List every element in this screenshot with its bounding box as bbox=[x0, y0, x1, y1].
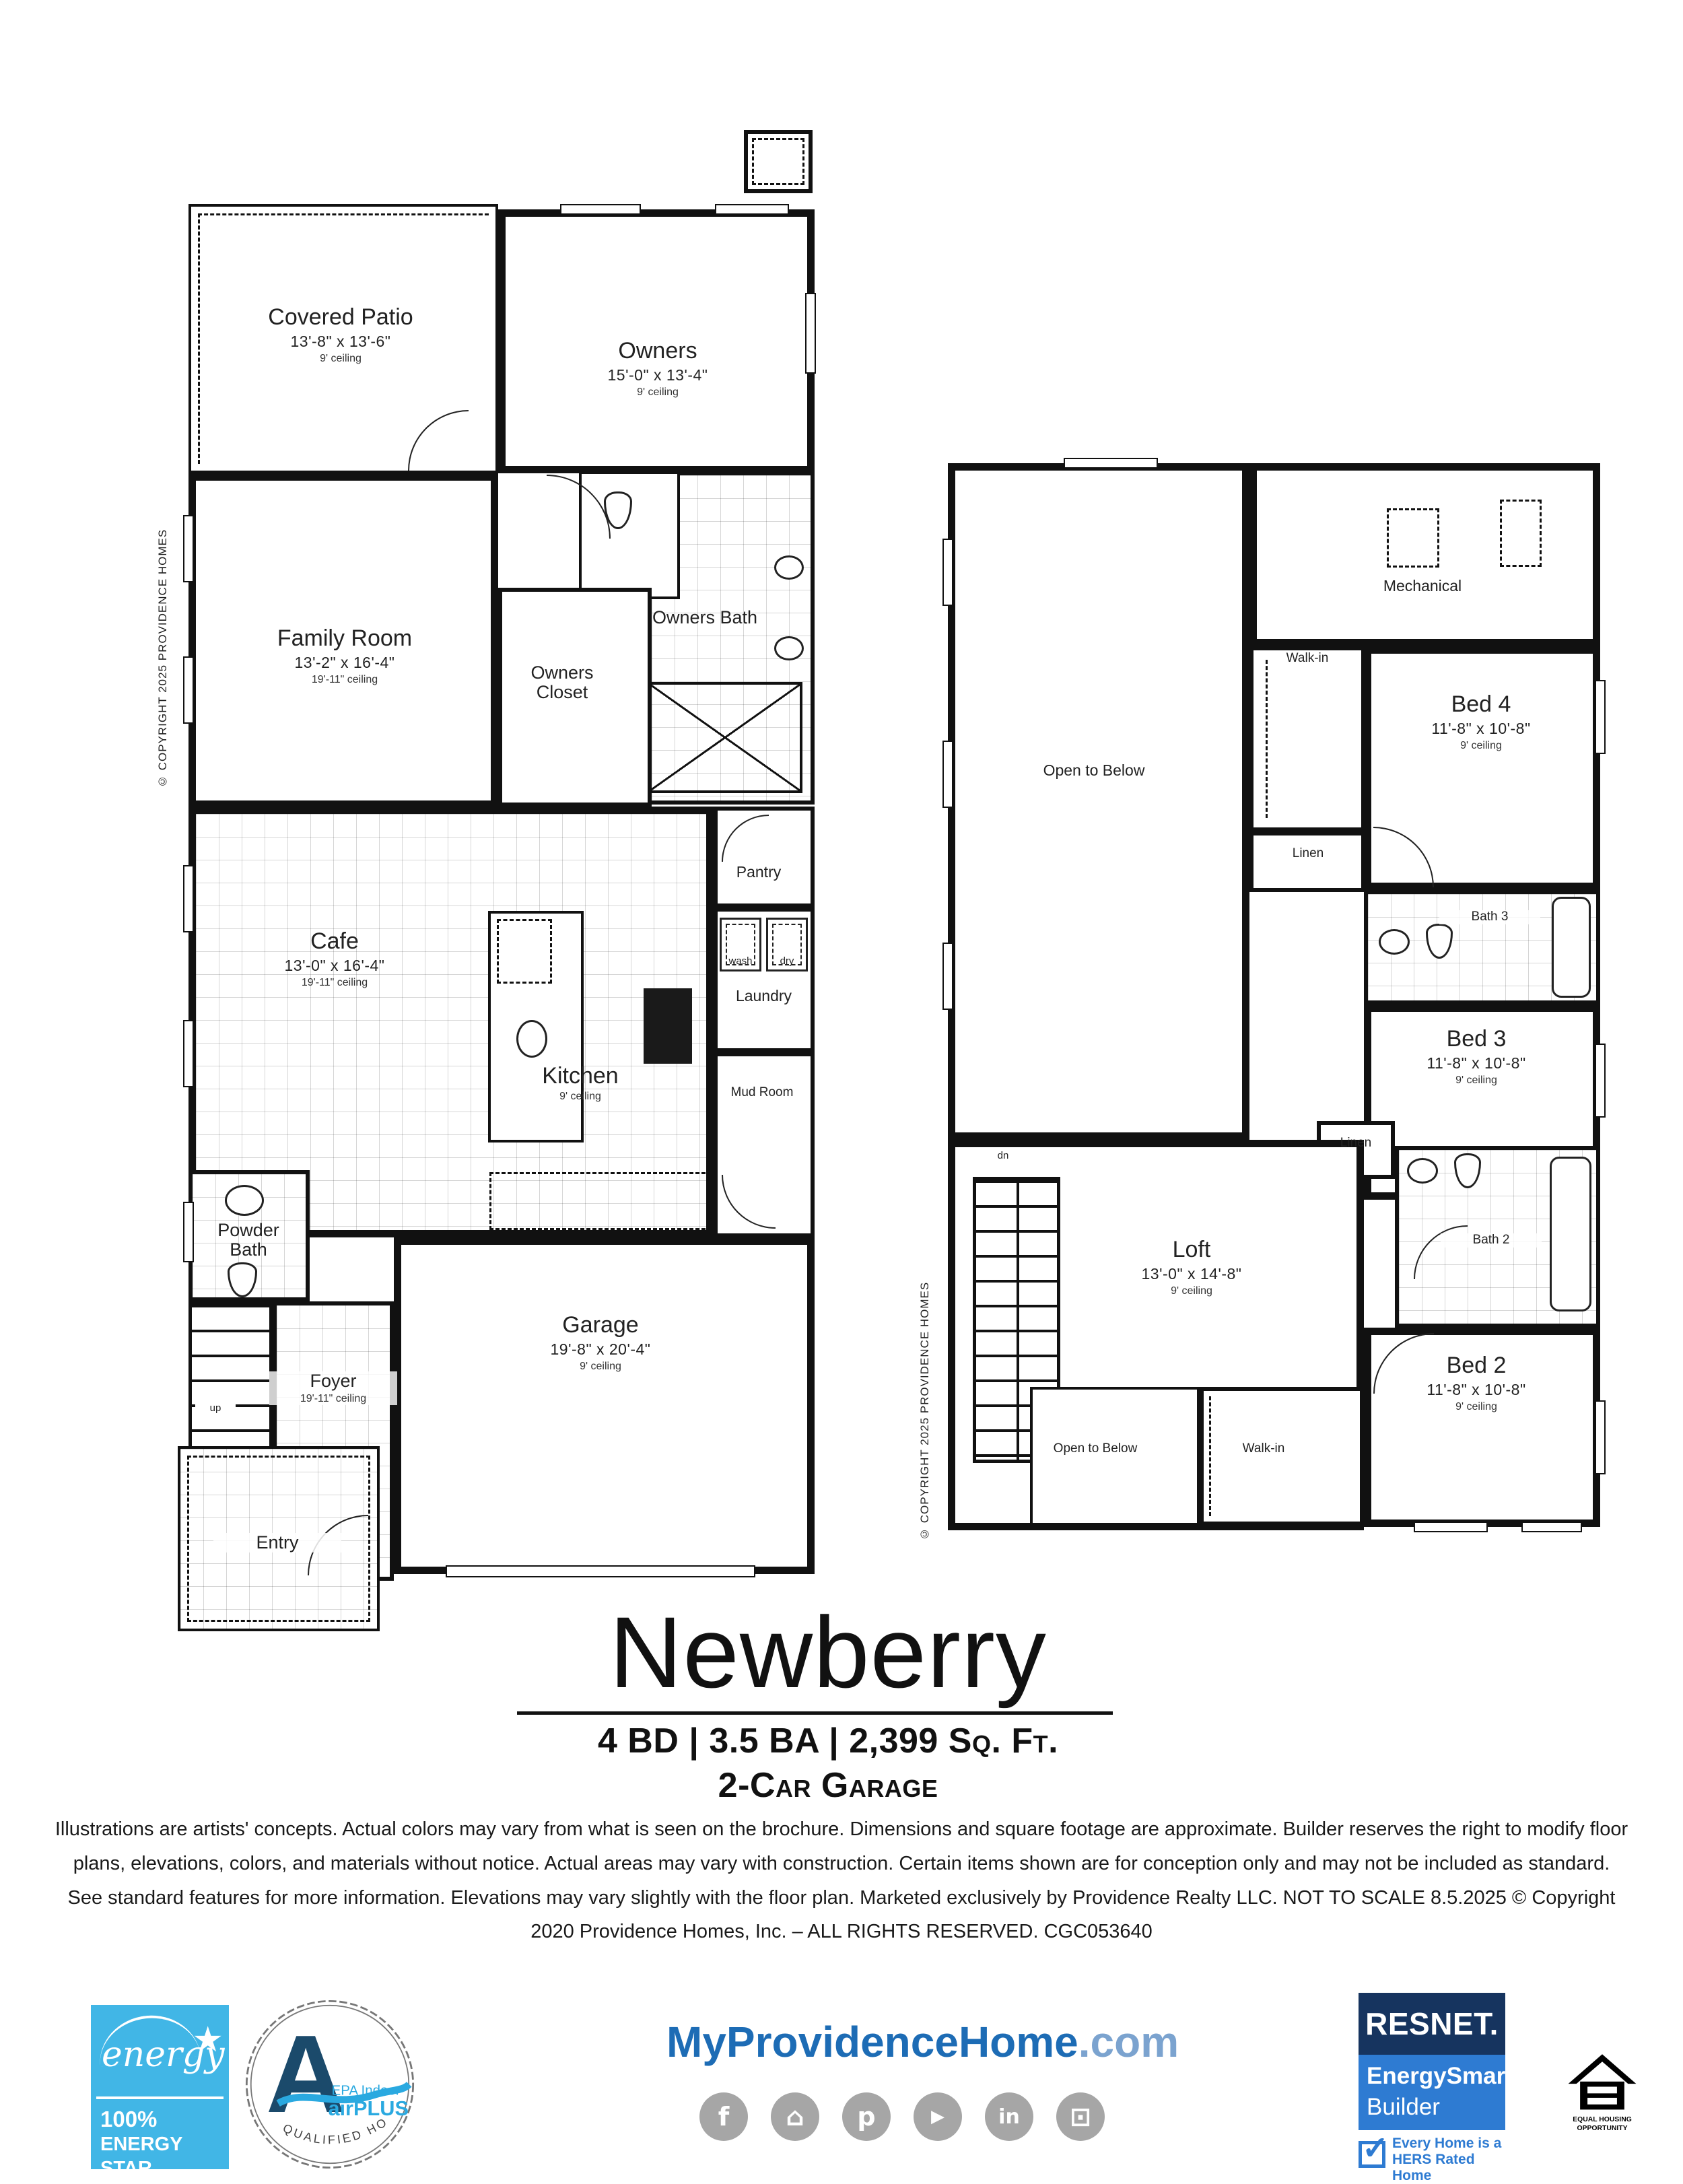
window bbox=[1595, 680, 1606, 754]
energy-star-pct: 100% bbox=[100, 2106, 229, 2133]
room-name: Owners Closet bbox=[512, 663, 613, 702]
instagram-icon[interactable]: ⊡ bbox=[1056, 2092, 1105, 2141]
island-counter-dash bbox=[497, 919, 552, 984]
plan-title: Newberry bbox=[438, 1594, 1218, 1711]
window bbox=[560, 204, 641, 215]
youtube-glyph: ▶ bbox=[931, 2107, 944, 2127]
sink-icon bbox=[225, 1185, 264, 1216]
room-name: Linen bbox=[1318, 1136, 1394, 1151]
room-name: Owners Bath bbox=[648, 608, 762, 627]
shower-icon bbox=[648, 682, 802, 793]
room-ceiling: 9' ceiling bbox=[253, 353, 428, 365]
window bbox=[942, 943, 953, 1010]
room-ceiling: 9' ceiling bbox=[1379, 1401, 1574, 1413]
window bbox=[183, 865, 194, 932]
window bbox=[183, 1202, 194, 1262]
room-name: Entry bbox=[213, 1533, 341, 1552]
room-name: Bath 3 bbox=[1439, 910, 1540, 924]
sink-icon bbox=[1379, 929, 1410, 955]
tub-icon bbox=[1552, 897, 1591, 998]
closet-rod-dash bbox=[1209, 1396, 1212, 1516]
second-floor-plan: Open to Below Mechanical Walk-in Bed 4 1… bbox=[942, 458, 1606, 1555]
sink-icon bbox=[774, 636, 804, 660]
disclaimer-text: Illustrations are artists' concepts. Act… bbox=[54, 1812, 1629, 1949]
room-name: Walk-in bbox=[1206, 1442, 1321, 1456]
room-name: Mechanical bbox=[1352, 578, 1493, 594]
room-name: Open to Below bbox=[1006, 762, 1181, 779]
window bbox=[1595, 1400, 1606, 1474]
plan-specs-line2: 2-Car Garage bbox=[438, 1765, 1218, 1806]
room-ceiling: 9' ceiling bbox=[513, 1091, 648, 1103]
houzz-glyph: ⌂ bbox=[786, 2102, 804, 2131]
room-ceiling: 19'-11" ceiling bbox=[250, 674, 439, 686]
chimney-dash bbox=[752, 138, 804, 185]
room-walkin-2 bbox=[1200, 1387, 1364, 1526]
resnet-sub1: EnergySmart bbox=[1367, 2063, 1497, 2090]
counter-dash bbox=[489, 1172, 712, 1230]
houzz-icon[interactable]: ⌂ bbox=[771, 2092, 819, 2141]
room-name: Bed 2 bbox=[1379, 1353, 1574, 1378]
room-dims: 13'-8" x 13'-6" bbox=[253, 333, 428, 351]
title-underline bbox=[517, 1711, 1113, 1715]
window bbox=[1521, 1522, 1582, 1532]
pinterest-icon[interactable]: p bbox=[842, 2092, 891, 2141]
room-name: Open to Below bbox=[1018, 1442, 1173, 1456]
closet-rod-dash bbox=[1266, 660, 1268, 818]
eho-house-body bbox=[1580, 2082, 1624, 2110]
linkedin-icon[interactable]: in bbox=[985, 2092, 1033, 2141]
dryer-icon: dry bbox=[766, 918, 808, 971]
eho-equal-bar bbox=[1587, 2098, 1617, 2105]
room-ceiling: 9' ceiling bbox=[500, 1361, 701, 1373]
pinterest-glyph: p bbox=[857, 2102, 875, 2131]
website-main: MyProvidenceHome bbox=[666, 2018, 1078, 2066]
epa-airplus-logo: A EPA Indoor airPLUS QUALIFIED HOME bbox=[244, 1998, 416, 2171]
eho-line1: EQUAL HOUSING bbox=[1573, 2116, 1632, 2123]
eho-equal-bar bbox=[1587, 2086, 1617, 2093]
website-link[interactable]: MyProvidenceHome.com bbox=[666, 2017, 1138, 2067]
open-to-below-top bbox=[948, 463, 1249, 1140]
copyright-vertical-2: © COPYRIGHT 2025 PROVIDENCE HOMES bbox=[918, 1217, 932, 1540]
equal-housing-logo: EQUAL HOUSING OPPORTUNITY bbox=[1565, 2052, 1639, 2137]
range-icon bbox=[644, 988, 692, 1064]
window bbox=[1064, 458, 1158, 469]
resnet-brand: RESNET. bbox=[1359, 1993, 1505, 2055]
room-name: Laundry bbox=[701, 988, 826, 1004]
window bbox=[1414, 1522, 1488, 1532]
room-name: Pantry bbox=[701, 864, 816, 881]
resnet-tag1: Every Home is a bbox=[1392, 2136, 1505, 2152]
instagram-glyph: ⊡ bbox=[1070, 2102, 1091, 2131]
room-name: Foyer bbox=[269, 1371, 397, 1391]
room-name: Bed 3 bbox=[1379, 1027, 1574, 1052]
room-name: Bath 2 bbox=[1441, 1233, 1542, 1248]
window bbox=[715, 204, 789, 215]
room-name: Walk-in bbox=[1253, 652, 1361, 666]
stairs-down-label: dn bbox=[980, 1150, 1027, 1161]
social-icons-row: f ⌂ p ▶ in ⊡ bbox=[699, 2092, 1105, 2141]
resnet-logo: RESNET. EnergySmart Builder Every Home i… bbox=[1359, 1993, 1505, 2184]
dryer-label: dry bbox=[780, 955, 794, 967]
youtube-icon[interactable]: ▶ bbox=[914, 2092, 962, 2141]
chimney-box bbox=[744, 130, 813, 193]
resnet-tag2: HERS Rated Home bbox=[1392, 2152, 1505, 2184]
mechanical-equip-dash bbox=[1500, 500, 1542, 567]
energy-star-divider bbox=[96, 2096, 224, 2099]
room-name: Linen bbox=[1258, 847, 1359, 861]
copyright-vertical-1: © COPYRIGHT 2025 PROVIDENCE HOMES bbox=[156, 465, 170, 788]
stairs-up-label: up bbox=[195, 1402, 236, 1414]
website-tld: .com bbox=[1078, 2018, 1179, 2066]
airplus-line2: airPLUS bbox=[328, 2096, 409, 2120]
room-dims: 13'-0" x 16'-4" bbox=[247, 957, 422, 975]
room-name: Cafe bbox=[247, 929, 422, 954]
room-dims: 11'-8" x 10'-8" bbox=[1383, 720, 1579, 738]
room-name: Kitchen bbox=[513, 1064, 648, 1089]
window bbox=[805, 293, 816, 374]
room-ceiling: 9' ceiling bbox=[1383, 740, 1579, 752]
room-dims: 15'-0" x 13'-4" bbox=[570, 366, 745, 384]
tub-icon bbox=[1550, 1157, 1591, 1311]
room-name: Garage bbox=[500, 1313, 701, 1338]
room-garage bbox=[394, 1237, 815, 1574]
first-floor-plan: Covered Patio 13'-8" x 13'-6" 9' ceiling… bbox=[183, 125, 823, 1639]
room-dims: 19'-8" x 20'-4" bbox=[500, 1340, 701, 1359]
facebook-glyph: f bbox=[718, 2102, 730, 2131]
eho-roof bbox=[1569, 2054, 1637, 2084]
energy-star-line1: ENERGY STAR bbox=[100, 2133, 229, 2169]
open-to-below-bottom bbox=[1030, 1387, 1200, 1526]
garage-door bbox=[446, 1565, 755, 1577]
window bbox=[183, 656, 194, 724]
checkmark-icon bbox=[1359, 2141, 1385, 2168]
facebook-icon[interactable]: f bbox=[699, 2092, 748, 2141]
room-name: Powder Bath bbox=[198, 1221, 299, 1260]
stair-rail bbox=[1017, 1180, 1019, 1460]
eho-line2: OPPORTUNITY bbox=[1577, 2125, 1627, 2132]
room-dims: 13'-2" x 16'-4" bbox=[250, 654, 439, 672]
washer-label: wash bbox=[728, 955, 752, 967]
room-dims: 13'-0" x 14'-8" bbox=[1097, 1265, 1286, 1283]
plan-specs-line1: 4 BD | 3.5 BA | 2,399 Sq. Ft. bbox=[438, 1721, 1218, 1761]
linkedin-glyph: in bbox=[998, 2105, 1020, 2129]
mechanical-equip-dash bbox=[1387, 508, 1439, 568]
sink-icon bbox=[1407, 1158, 1438, 1184]
airplus-line1: EPA Indoor bbox=[332, 2082, 401, 2098]
sink-icon bbox=[516, 1020, 547, 1058]
room-ceiling: 9' ceiling bbox=[1379, 1074, 1574, 1087]
room-linen-1 bbox=[1249, 831, 1365, 892]
room-name: Mud Room bbox=[705, 1086, 819, 1100]
room-name: Family Room bbox=[250, 626, 439, 651]
energy-star-logo: energy ★ 100% ENERGY STAR CERTIFIED bbox=[91, 2005, 229, 2169]
window bbox=[183, 1020, 194, 1087]
star-icon: ★ bbox=[192, 2020, 224, 2060]
window bbox=[183, 515, 194, 582]
washer-icon: wash bbox=[720, 918, 761, 971]
room-name: Covered Patio bbox=[253, 305, 428, 330]
room-name: Owners bbox=[570, 339, 745, 364]
resnet-sub2: Builder bbox=[1367, 2094, 1497, 2121]
room-ceiling: 9' ceiling bbox=[570, 386, 745, 399]
room-dims: 11'-8" x 10'-8" bbox=[1379, 1381, 1574, 1399]
room-dims: 11'-8" x 10'-8" bbox=[1379, 1054, 1574, 1072]
sink-icon bbox=[774, 555, 804, 580]
room-name: Bed 4 bbox=[1383, 692, 1579, 717]
room-ceiling: 19'-11" ceiling bbox=[269, 1393, 397, 1405]
room-name: Loft bbox=[1097, 1237, 1286, 1262]
room-ceiling: 9' ceiling bbox=[1097, 1285, 1286, 1297]
room-ceiling: 19'-11" ceiling bbox=[247, 977, 422, 989]
window bbox=[942, 741, 953, 808]
window bbox=[942, 539, 953, 606]
window bbox=[1595, 1044, 1606, 1118]
